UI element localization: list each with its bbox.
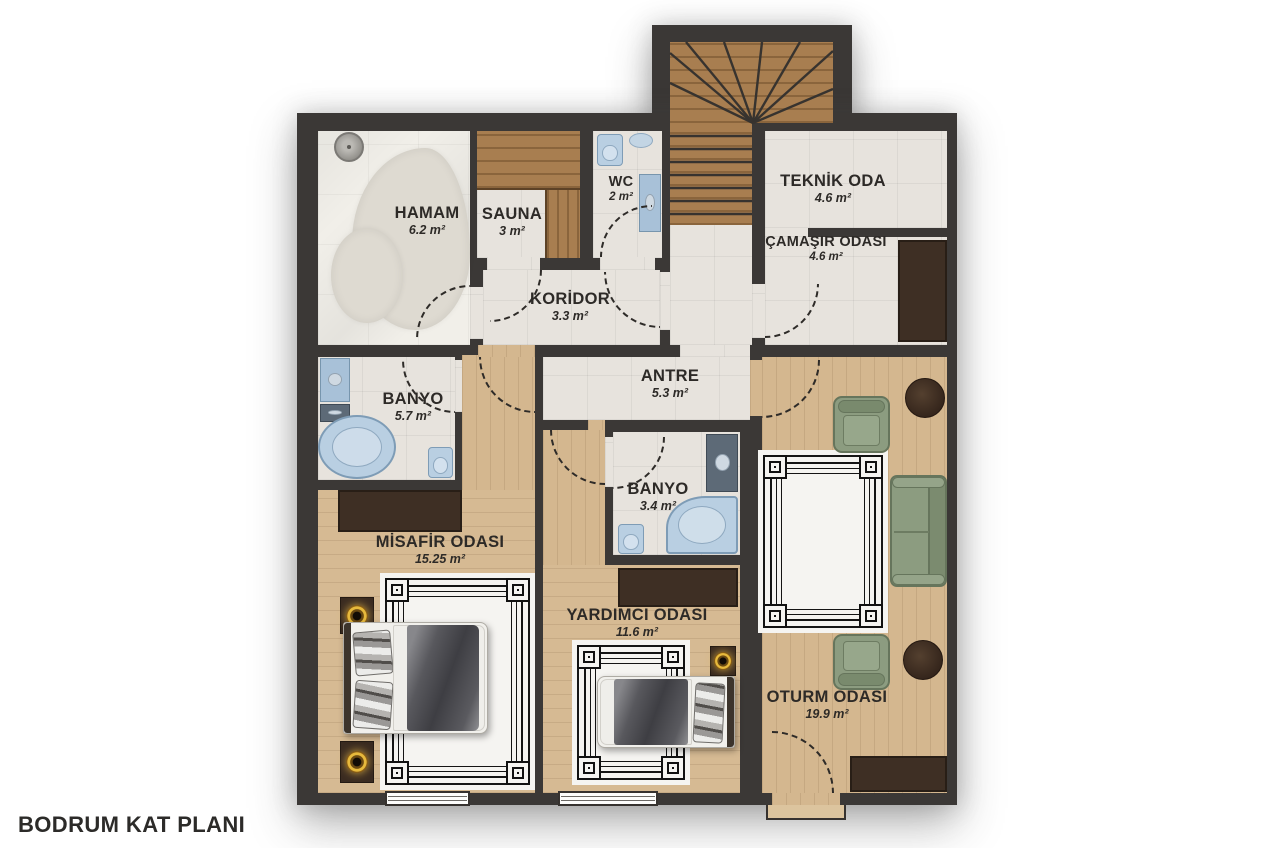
lamp-icon [714,652,732,670]
bed-headboard [727,677,734,747]
bed-headboard [344,623,351,733]
wc-vanity [639,174,661,232]
door-opening-landing-antre [680,345,750,357]
banyo1-toilet [428,447,453,478]
yardimci-nightstand [710,646,736,676]
wc-sink [629,133,653,148]
floor-plan-canvas: HAMAM 6.2 m² SAUNA 3 m² WC 2 m² TEKNİK O… [0,0,1285,848]
banyo1-shower [318,415,396,479]
door-opening-hamam [470,287,483,339]
door-opening-antre-oturma [750,360,762,416]
exterior-door-step [766,805,846,820]
chair-seat [843,415,880,446]
banyo2-toilet [618,524,644,554]
bed-pillow [692,682,725,743]
banyo2-tub [666,496,738,554]
yardimci-wardrobe [618,568,738,607]
oturma-ottoman-bottom [903,640,943,680]
sofa-arm [892,574,945,585]
sofa-arm [892,477,945,488]
banyo2-vanity [706,434,738,492]
sauna-bench-top [477,131,580,190]
bed-pillow [352,629,394,676]
misafir-double-bed [343,622,488,734]
hamam-platform-bulge [331,228,403,323]
door-opening-wc [600,257,655,270]
hamam-basin [334,132,364,162]
stairs-treads [652,25,852,345]
banyo1-vanity [320,358,350,402]
bed-blanket [407,625,479,731]
oturma-armchair-bottom [833,634,890,690]
passage-west-floor [462,355,535,490]
misafir-wardrobe [338,490,462,532]
door-opening-koridor-passage [478,345,535,357]
door-opening-banyo1 [455,360,462,412]
window-yardimci [558,791,658,806]
oturma-cabinet [850,756,947,792]
sauna-bench-right [545,190,580,258]
door-opening-exterior [772,793,840,805]
sofa-seam [894,531,929,533]
oturma-sofa [890,475,947,587]
misafir-nightstand-bottom [340,741,374,783]
sofa-back [928,477,945,585]
oturma-ottoman-top [905,378,945,418]
bed-blanket [614,679,688,745]
door-opening-sauna [487,257,540,270]
lamp-icon [346,751,368,773]
room-antre-floor [543,357,750,420]
plan-title: BODRUM KAT PLANI [18,812,245,838]
room-koridor-floor [483,270,660,345]
door-opening-antre-passage [588,420,605,430]
wc-toilet [597,134,623,166]
window-misafir [385,791,470,806]
bed-pillow [352,680,393,731]
oturma-rug [763,455,883,628]
yardimci-single-bed [597,676,735,748]
door-opening-banyo2 [605,437,613,487]
chair-back [838,673,885,686]
chair-seat [843,641,880,671]
oturma-armchair-top [833,396,890,453]
camasir-cabinet [898,240,947,342]
chair-back [838,400,885,413]
